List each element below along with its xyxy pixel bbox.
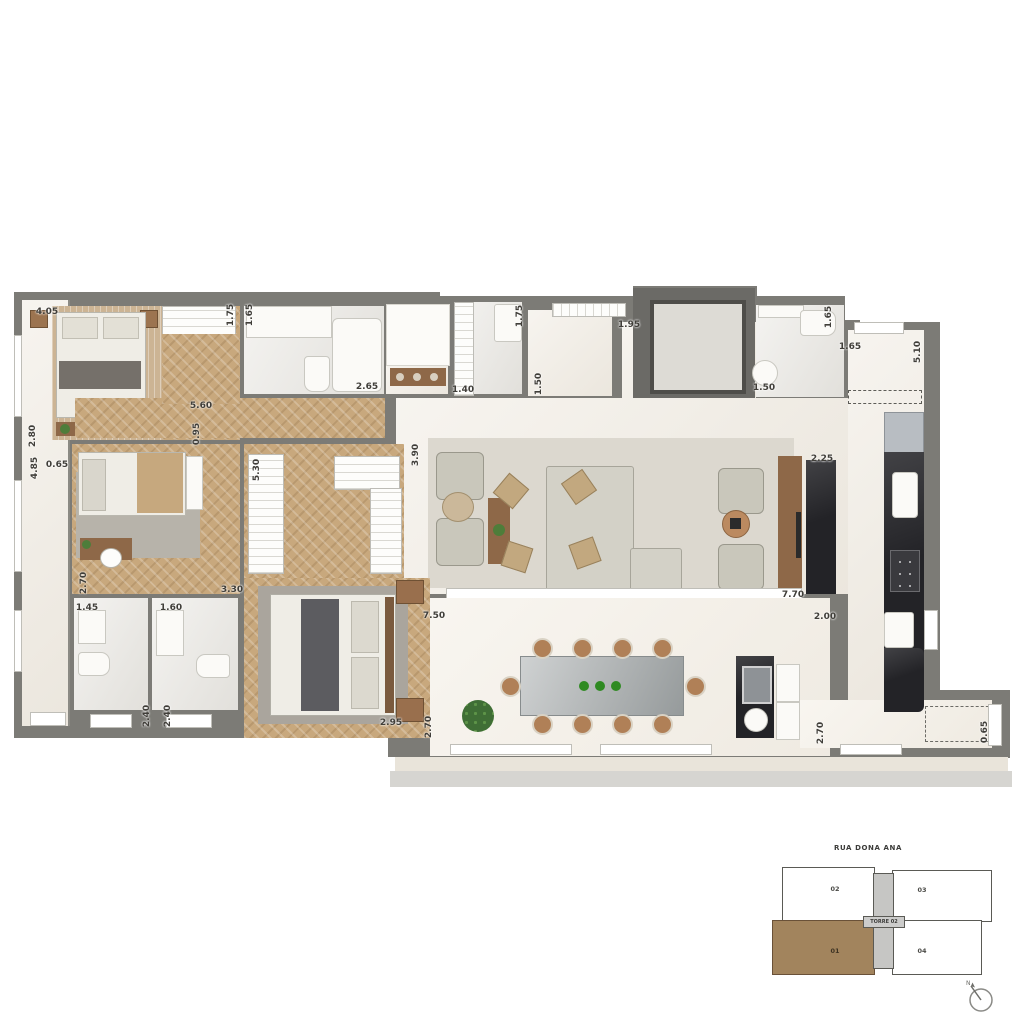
dimension-label: 2.00 bbox=[814, 612, 836, 622]
unit-number: 02 bbox=[830, 885, 839, 893]
svg-text:N: N bbox=[966, 980, 971, 987]
keyplan-unit-04 bbox=[892, 920, 982, 975]
dimension-label: 2.95 bbox=[380, 718, 402, 728]
dimension-label: 0.65 bbox=[980, 721, 990, 743]
dimension-label: 4.85 bbox=[30, 457, 40, 479]
tower-label: TORRE 02 bbox=[863, 916, 905, 928]
floor-plan-sheet: 4.051.751.652.652.804.850.655.600.955.30… bbox=[0, 0, 1024, 1024]
dimension-label: 2.70 bbox=[79, 572, 89, 594]
dimension-label: 5.60 bbox=[190, 401, 212, 411]
street-label: RUA DONA ANA bbox=[834, 844, 902, 852]
dimension-label: 1.75 bbox=[226, 304, 236, 326]
unit-number: 04 bbox=[917, 947, 926, 955]
dimension-label: 2.65 bbox=[356, 382, 378, 392]
dimension-label: 1.45 bbox=[76, 603, 98, 613]
dimension-label: 0.65 bbox=[46, 460, 68, 470]
dimension-label: 5.30 bbox=[252, 459, 262, 481]
dimension-label: 2.80 bbox=[28, 425, 38, 447]
keyplan-unit-03 bbox=[892, 870, 992, 922]
dimension-label: 1.65 bbox=[824, 306, 834, 328]
dimension-label: 1.50 bbox=[534, 373, 544, 395]
dimension-label: 7.70 bbox=[782, 590, 804, 600]
dimension-label: 2.70 bbox=[816, 722, 826, 744]
dimension-label: 3.90 bbox=[411, 444, 421, 466]
keyplan-unit-02 bbox=[782, 867, 875, 922]
dimension-label: 7.50 bbox=[423, 611, 445, 621]
dimension-label: 1.95 bbox=[618, 320, 640, 330]
dimension-label: 2.70 bbox=[424, 716, 434, 738]
keyplan-unit-01-highlighted bbox=[772, 920, 875, 975]
dimension-label: 2.40 bbox=[163, 705, 173, 727]
dimension-label: 4.05 bbox=[36, 307, 58, 317]
unit-number: 01 bbox=[830, 947, 839, 955]
dimension-label: 2.25 bbox=[811, 454, 833, 464]
dimension-label: 2.40 bbox=[142, 705, 152, 727]
dimension-label: 1.50 bbox=[753, 383, 775, 393]
unit-number: 03 bbox=[917, 886, 926, 894]
dimension-label: 5.10 bbox=[913, 341, 923, 363]
dimension-label: 0.95 bbox=[192, 423, 202, 445]
key-plan: RUA DONA ANA TORRE 02 02 03 01 04 N bbox=[760, 832, 1016, 1022]
dimension-label: 1.40 bbox=[452, 385, 474, 395]
dimension-label: 1.65 bbox=[839, 342, 861, 352]
dimension-label: 1.75 bbox=[515, 305, 525, 327]
dimension-label: 1.60 bbox=[160, 603, 182, 613]
dimension-label: 3.30 bbox=[221, 585, 243, 595]
north-arrow-icon: N bbox=[957, 974, 1001, 1018]
dimension-label: 1.65 bbox=[245, 304, 255, 326]
